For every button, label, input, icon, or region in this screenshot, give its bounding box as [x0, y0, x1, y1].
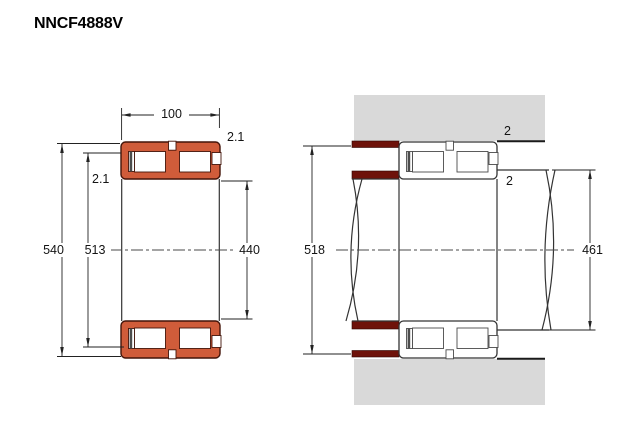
housing-shoulder-ring-bottom	[352, 351, 399, 358]
housing-shoulder-ring-top	[352, 141, 399, 148]
arrowhead	[86, 153, 90, 162]
roller-row-2	[180, 328, 211, 349]
dim-label-raceway-diameter: 513	[79, 243, 111, 257]
side-recess	[212, 153, 221, 165]
arrowhead	[60, 347, 64, 356]
roller-row-1	[413, 328, 444, 349]
catalog-drawing-page: NNCF4888V	[0, 0, 640, 440]
bearing-section-top	[121, 141, 221, 179]
bearing-section-bottom	[121, 321, 221, 359]
retaining-ring	[130, 152, 133, 172]
arrowhead	[245, 310, 249, 319]
dim-label-shaft-fillet: 2	[506, 174, 513, 188]
arrowhead	[588, 170, 592, 179]
housing-block-top	[354, 95, 545, 141]
arrowhead	[588, 321, 592, 330]
shaft-spacer-ring-bottom	[352, 321, 399, 329]
roller-row-2	[457, 152, 488, 173]
mounting-view	[303, 95, 596, 405]
arrowhead	[122, 113, 131, 117]
arrowhead	[310, 345, 314, 354]
retaining-ring	[130, 329, 133, 349]
dim-label-chamfer-outer: 2.1	[227, 130, 244, 144]
dim-label-outside-diameter: 540	[37, 243, 70, 257]
arrowhead	[60, 144, 64, 153]
mounted-bearing-section-top	[399, 141, 498, 179]
roller-row-2	[457, 328, 488, 349]
dim-label-housing-fillet: 2	[504, 124, 511, 138]
arrowhead	[245, 181, 249, 190]
cross-section-view	[57, 108, 253, 359]
side-recess	[489, 336, 498, 348]
dim-label-shaft-abutment: 461	[576, 243, 609, 257]
roller-row-1	[135, 328, 166, 349]
arrowhead	[310, 146, 314, 155]
arrowhead	[210, 113, 219, 117]
side-recess	[212, 336, 221, 348]
lubrication-groove	[446, 141, 454, 150]
housing-block-bottom	[354, 359, 545, 405]
side-recess	[489, 153, 498, 165]
dim-label-housing-abutment: 518	[298, 243, 331, 257]
roller-row-1	[413, 152, 444, 173]
lubrication-groove	[446, 350, 454, 359]
lubrication-groove	[169, 141, 177, 150]
dim-label-chamfer-inner: 2.1	[92, 172, 109, 186]
roller-row-1	[135, 152, 166, 173]
dim-label-width: 100	[154, 107, 189, 121]
dim-label-bore-diameter: 440	[233, 243, 266, 257]
retaining-ring	[408, 329, 411, 349]
technical-drawing	[0, 0, 640, 440]
lubrication-groove	[169, 350, 177, 359]
shaft-spacer-ring-top	[352, 171, 399, 179]
retaining-ring	[408, 152, 411, 172]
mounted-bearing-section-bottom	[399, 321, 498, 359]
arrowhead	[86, 338, 90, 347]
roller-row-2	[180, 152, 211, 173]
